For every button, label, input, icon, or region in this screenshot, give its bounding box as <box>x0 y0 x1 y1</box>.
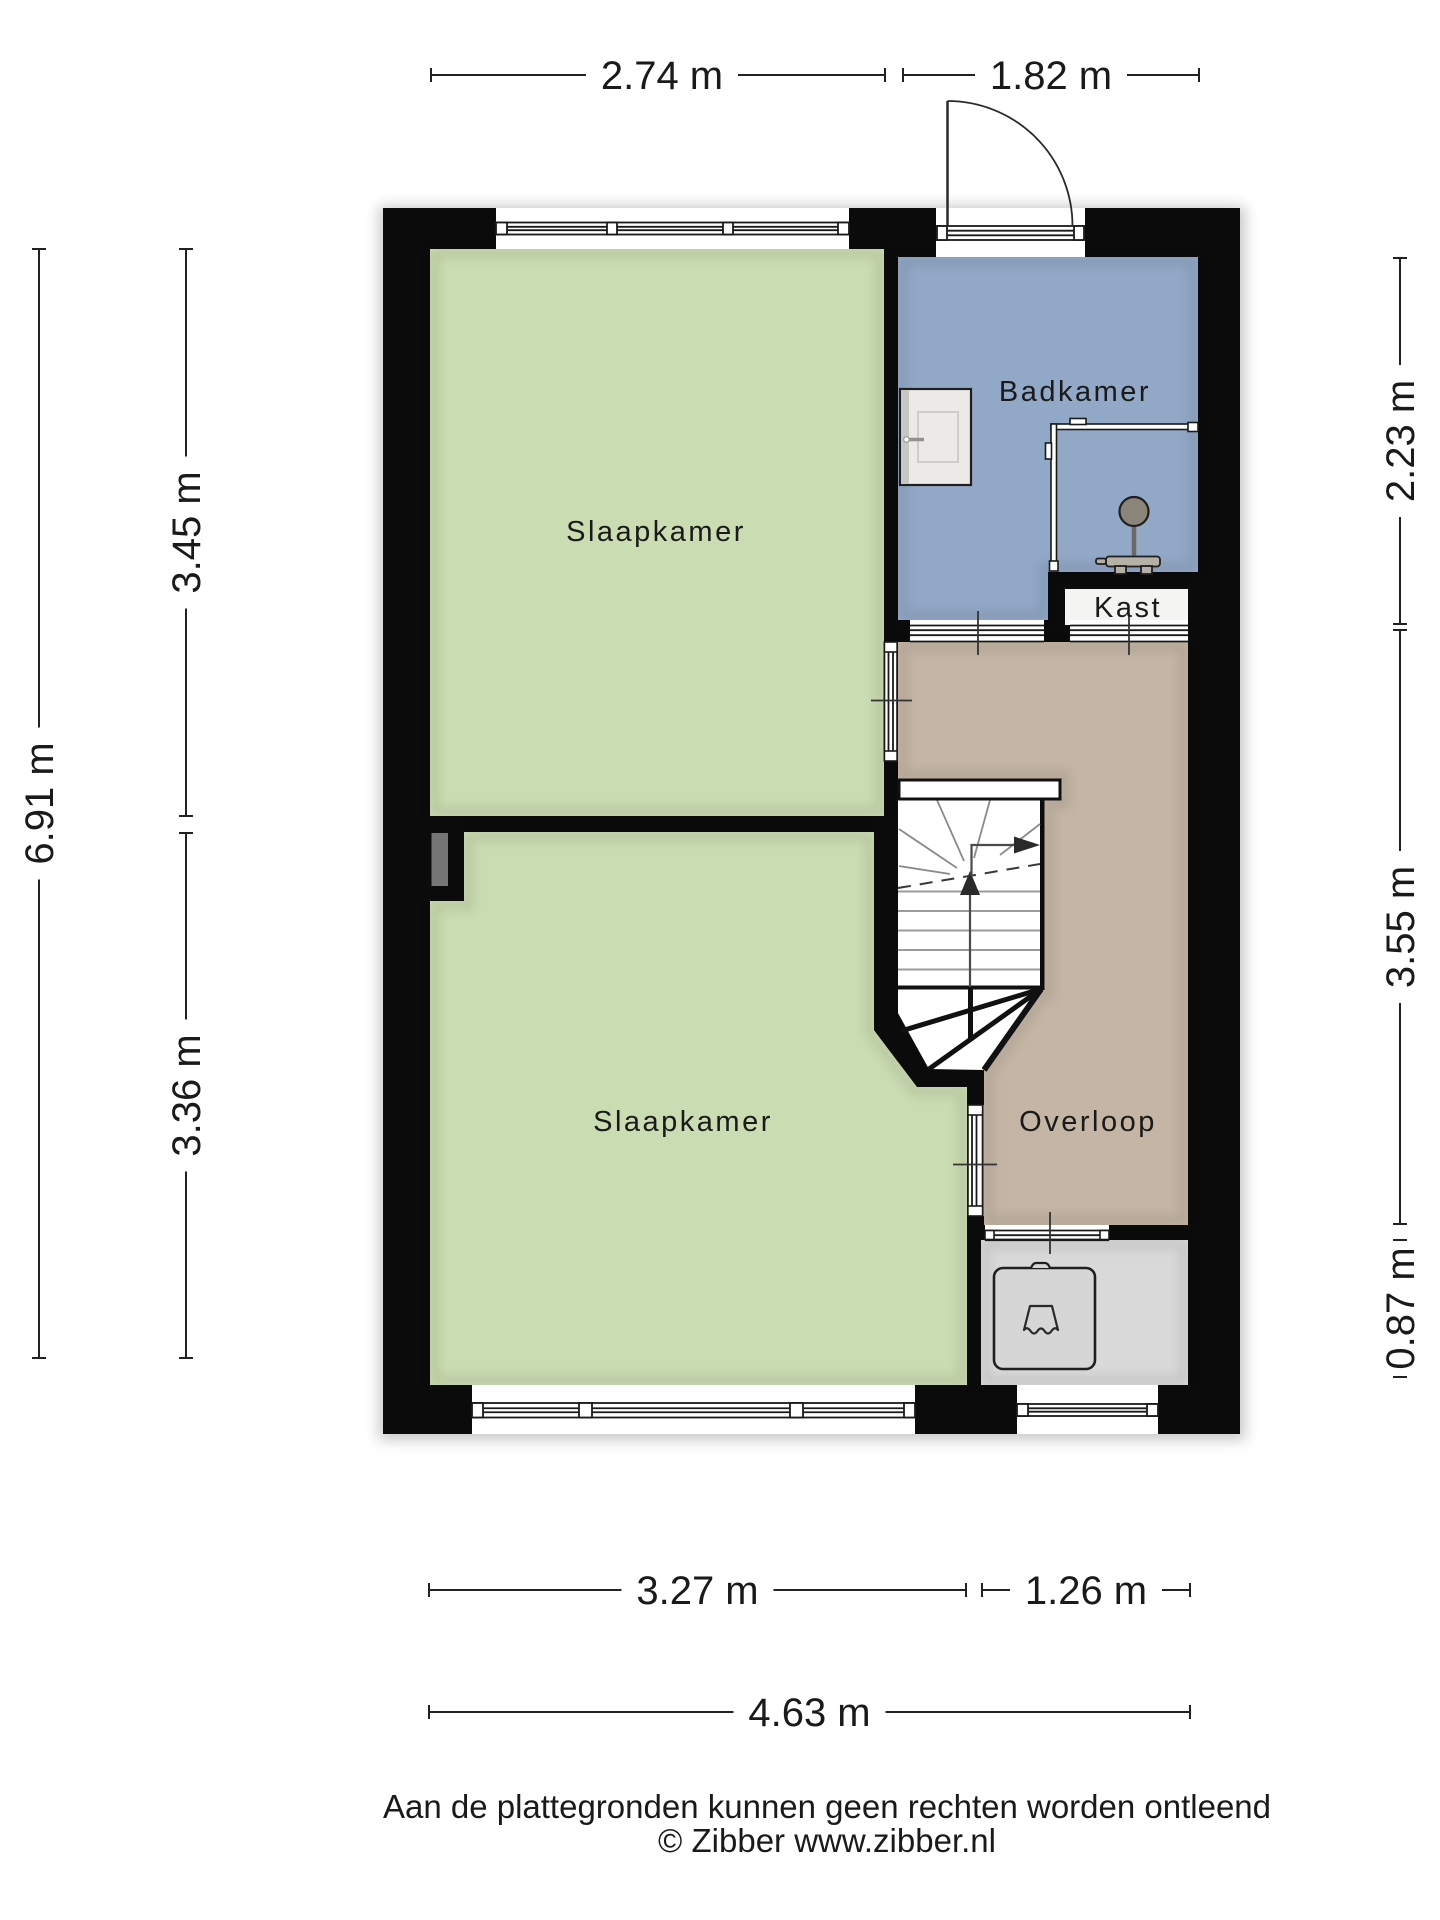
svg-text:Badkamer: Badkamer <box>999 376 1151 408</box>
svg-text:Slaapkamer: Slaapkamer <box>593 1106 773 1138</box>
svg-text:3.36 m: 3.36 m <box>165 1034 209 1156</box>
svg-text:1.26 m: 1.26 m <box>1025 1569 1147 1613</box>
svg-text:Slaapkamer: Slaapkamer <box>566 516 746 548</box>
svg-text:4.63 m: 4.63 m <box>748 1691 870 1735</box>
svg-text:Aan de plattegronden kunnen ge: Aan de plattegronden kunnen geen rechten… <box>383 1788 1271 1825</box>
svg-text:3.27 m: 3.27 m <box>636 1569 758 1613</box>
svg-text:1.82 m: 1.82 m <box>990 54 1112 98</box>
svg-text:3.45 m: 3.45 m <box>165 471 209 593</box>
svg-text:2.23 m: 2.23 m <box>1379 380 1423 502</box>
svg-text:Kast: Kast <box>1094 592 1162 624</box>
svg-text:© Zibber www.zibber.nl: © Zibber www.zibber.nl <box>658 1822 996 1859</box>
svg-text:Overloop: Overloop <box>1019 1106 1157 1138</box>
svg-text:6.91 m: 6.91 m <box>18 742 62 864</box>
svg-text:0.87 m: 0.87 m <box>1379 1247 1423 1369</box>
svg-text:2.74 m: 2.74 m <box>601 54 723 98</box>
svg-text:3.55 m: 3.55 m <box>1379 866 1423 988</box>
